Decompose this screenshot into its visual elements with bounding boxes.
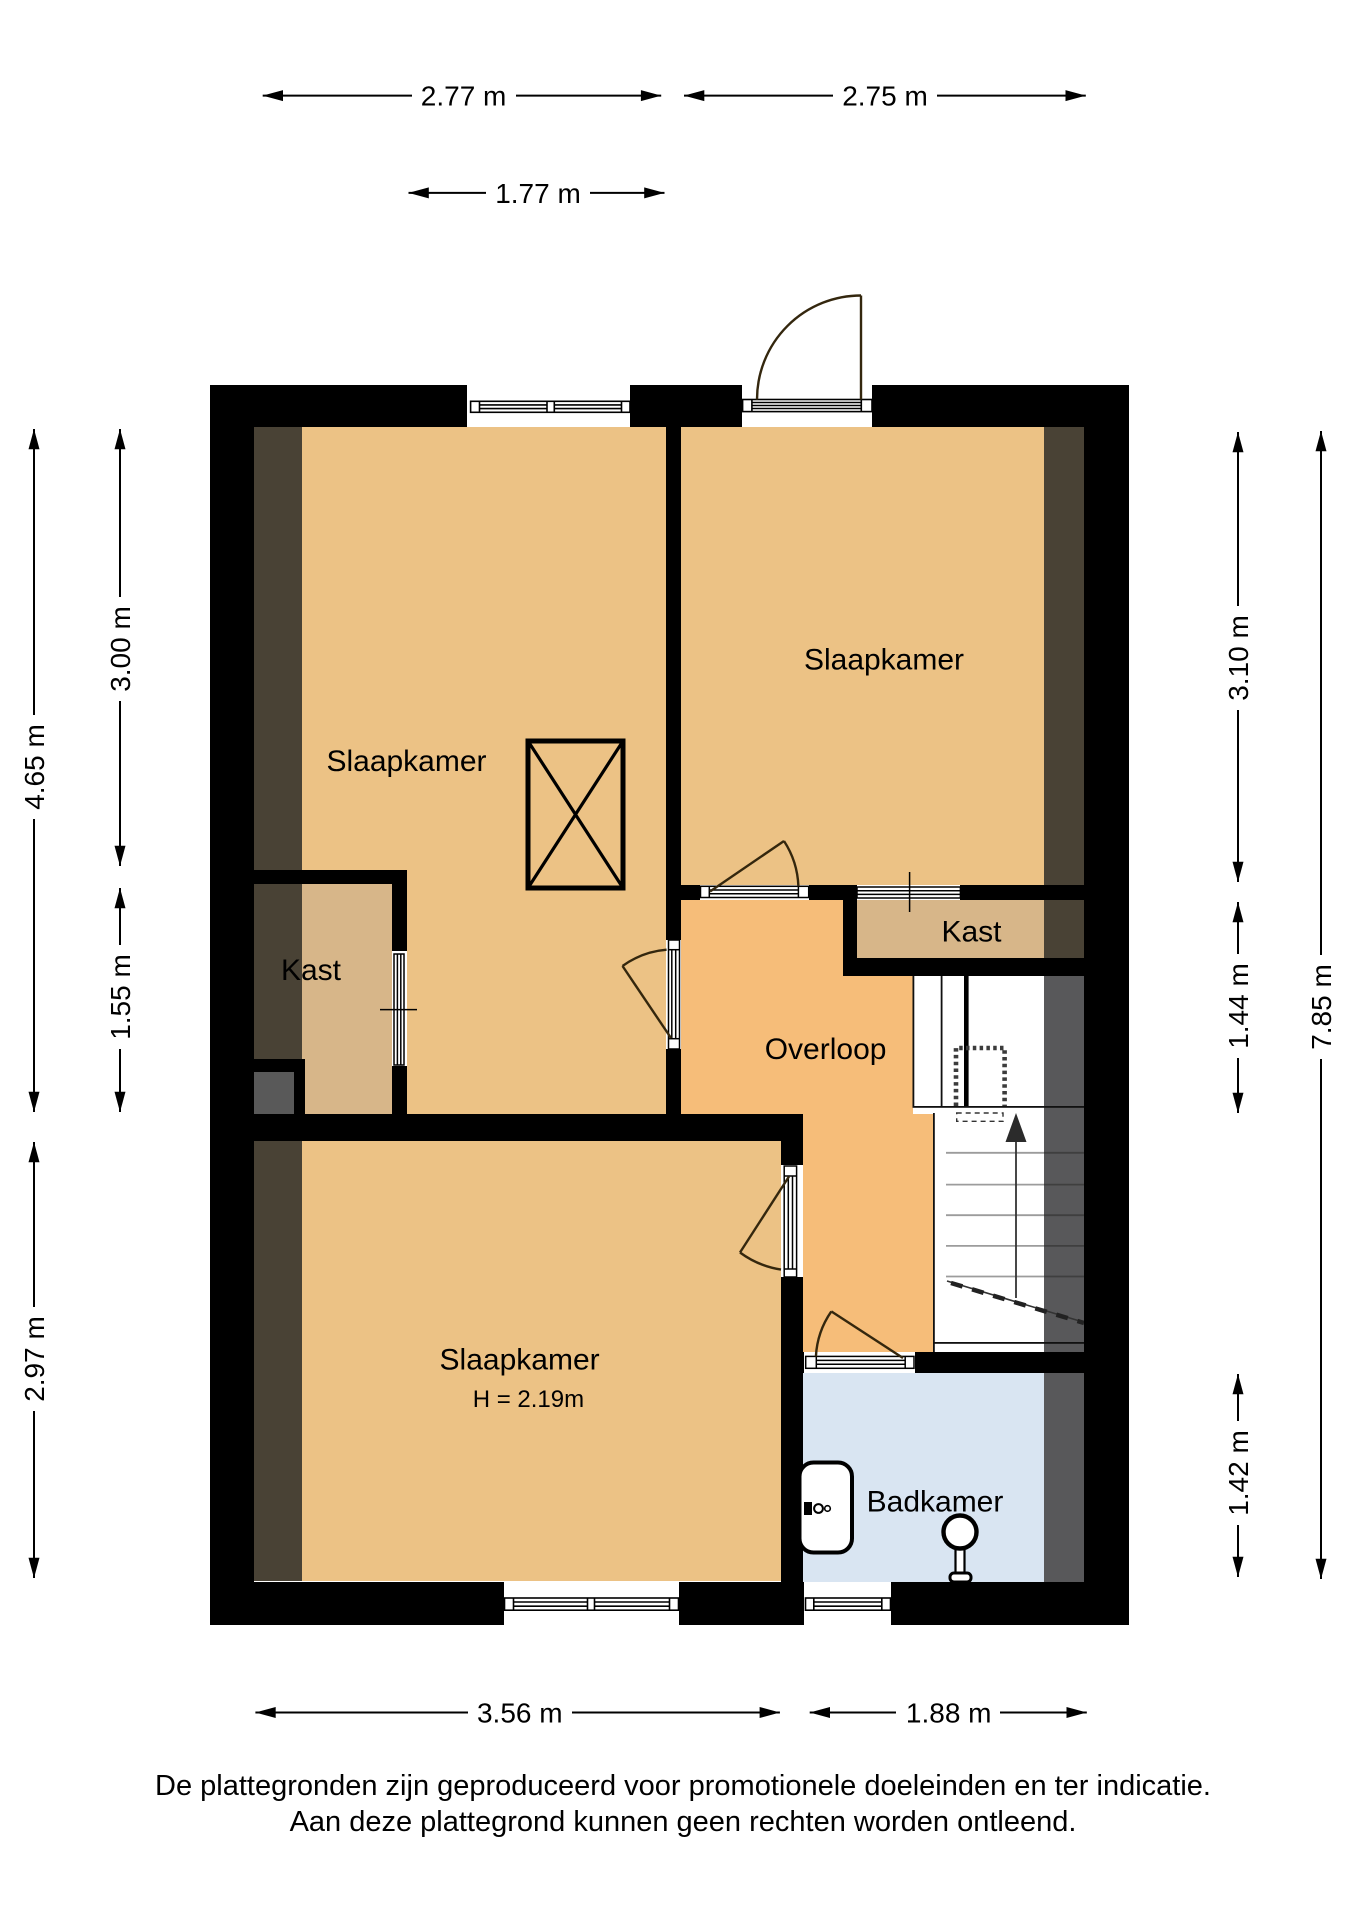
- svg-text:1.77 m: 1.77 m: [495, 178, 581, 209]
- svg-text:1.44 m: 1.44 m: [1223, 963, 1254, 1049]
- svg-text:Aan deze plattegrond kunnen ge: Aan deze plattegrond kunnen geen rechten…: [290, 1806, 1077, 1838]
- svg-text:3.10 m: 3.10 m: [1223, 615, 1254, 701]
- svg-text:Kast: Kast: [281, 954, 342, 987]
- svg-text:2.97 m: 2.97 m: [19, 1316, 50, 1402]
- svg-text:3.00 m: 3.00 m: [105, 606, 136, 692]
- svg-text:De plattegronden zijn geproduc: De plattegronden zijn geproduceerd voor …: [155, 1770, 1211, 1802]
- svg-text:Slaapkamer: Slaapkamer: [440, 1343, 600, 1376]
- svg-text:3.56 m: 3.56 m: [477, 1698, 563, 1729]
- svg-text:H = 2.19m: H = 2.19m: [473, 1386, 584, 1413]
- svg-text:Kast: Kast: [941, 916, 1002, 949]
- svg-text:4.65 m: 4.65 m: [19, 724, 50, 810]
- svg-text:2.75 m: 2.75 m: [842, 81, 928, 112]
- svg-text:Slaapkamer: Slaapkamer: [326, 745, 486, 778]
- svg-text:7.85 m: 7.85 m: [1306, 964, 1337, 1050]
- svg-text:1.42 m: 1.42 m: [1223, 1430, 1254, 1516]
- svg-text:Overloop: Overloop: [765, 1033, 887, 1066]
- svg-text:2.77 m: 2.77 m: [421, 81, 507, 112]
- svg-text:1.55 m: 1.55 m: [105, 954, 136, 1040]
- svg-text:1.88 m: 1.88 m: [906, 1698, 992, 1729]
- svg-text:Badkamer: Badkamer: [867, 1486, 1004, 1519]
- svg-text:Slaapkamer: Slaapkamer: [804, 644, 964, 677]
